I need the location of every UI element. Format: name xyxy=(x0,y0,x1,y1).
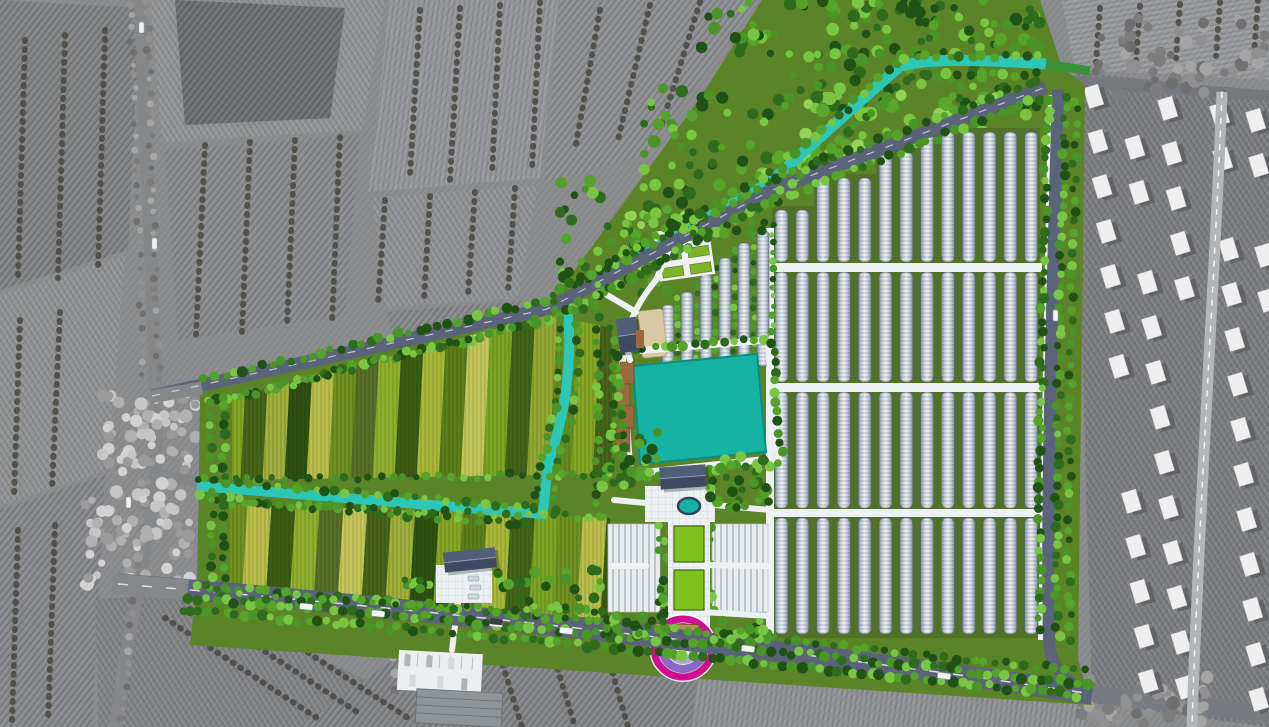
master-plan-rendering xyxy=(0,0,1269,727)
site-plan-canvas xyxy=(0,0,1269,727)
